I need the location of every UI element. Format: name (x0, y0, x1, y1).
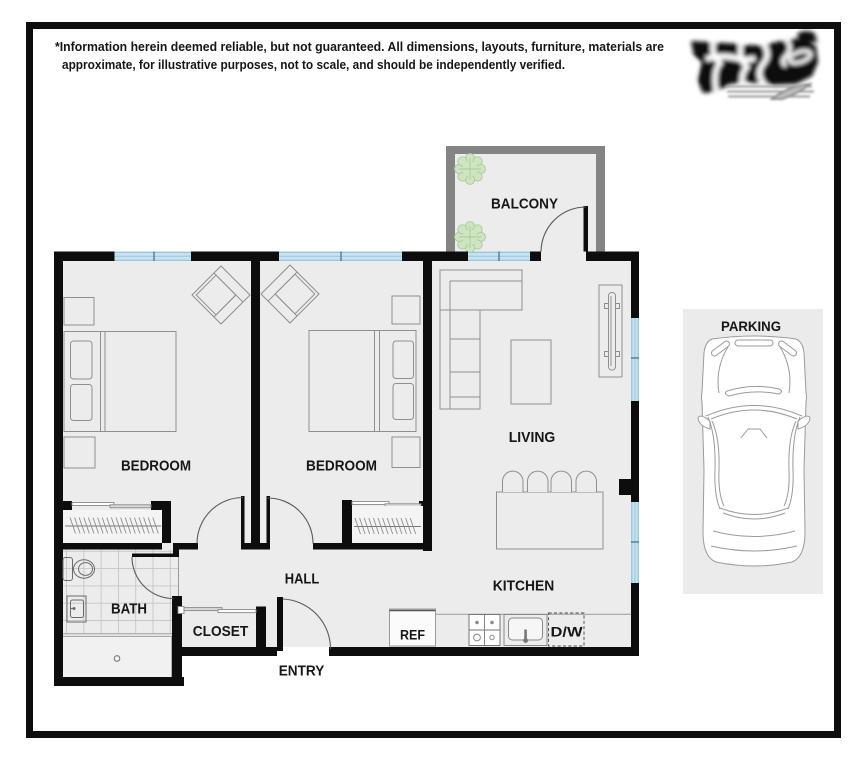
svg-text:ENTRY: ENTRY (279, 663, 325, 680)
svg-text:approximate, for illustrative: approximate, for illustrative purposes, … (62, 58, 565, 72)
svg-text:REF: REF (400, 628, 425, 643)
svg-text:CLOSET: CLOSET (193, 623, 249, 640)
svg-text:BATH: BATH (111, 601, 147, 618)
svg-text:BEDROOM: BEDROOM (121, 458, 191, 475)
svg-text:BALCONY: BALCONY (491, 196, 558, 213)
svg-text:HALL: HALL (285, 571, 320, 588)
svg-text:D/W: D/W (551, 625, 583, 640)
svg-text:LIVING: LIVING (509, 429, 556, 446)
svg-text:*Information herein deemed rel: *Information herein deemed reliable, but… (55, 40, 664, 54)
svg-text:PARKING: PARKING (721, 318, 781, 334)
svg-text:BEDROOM: BEDROOM (306, 458, 377, 475)
svg-text:KITCHEN: KITCHEN (493, 578, 555, 595)
